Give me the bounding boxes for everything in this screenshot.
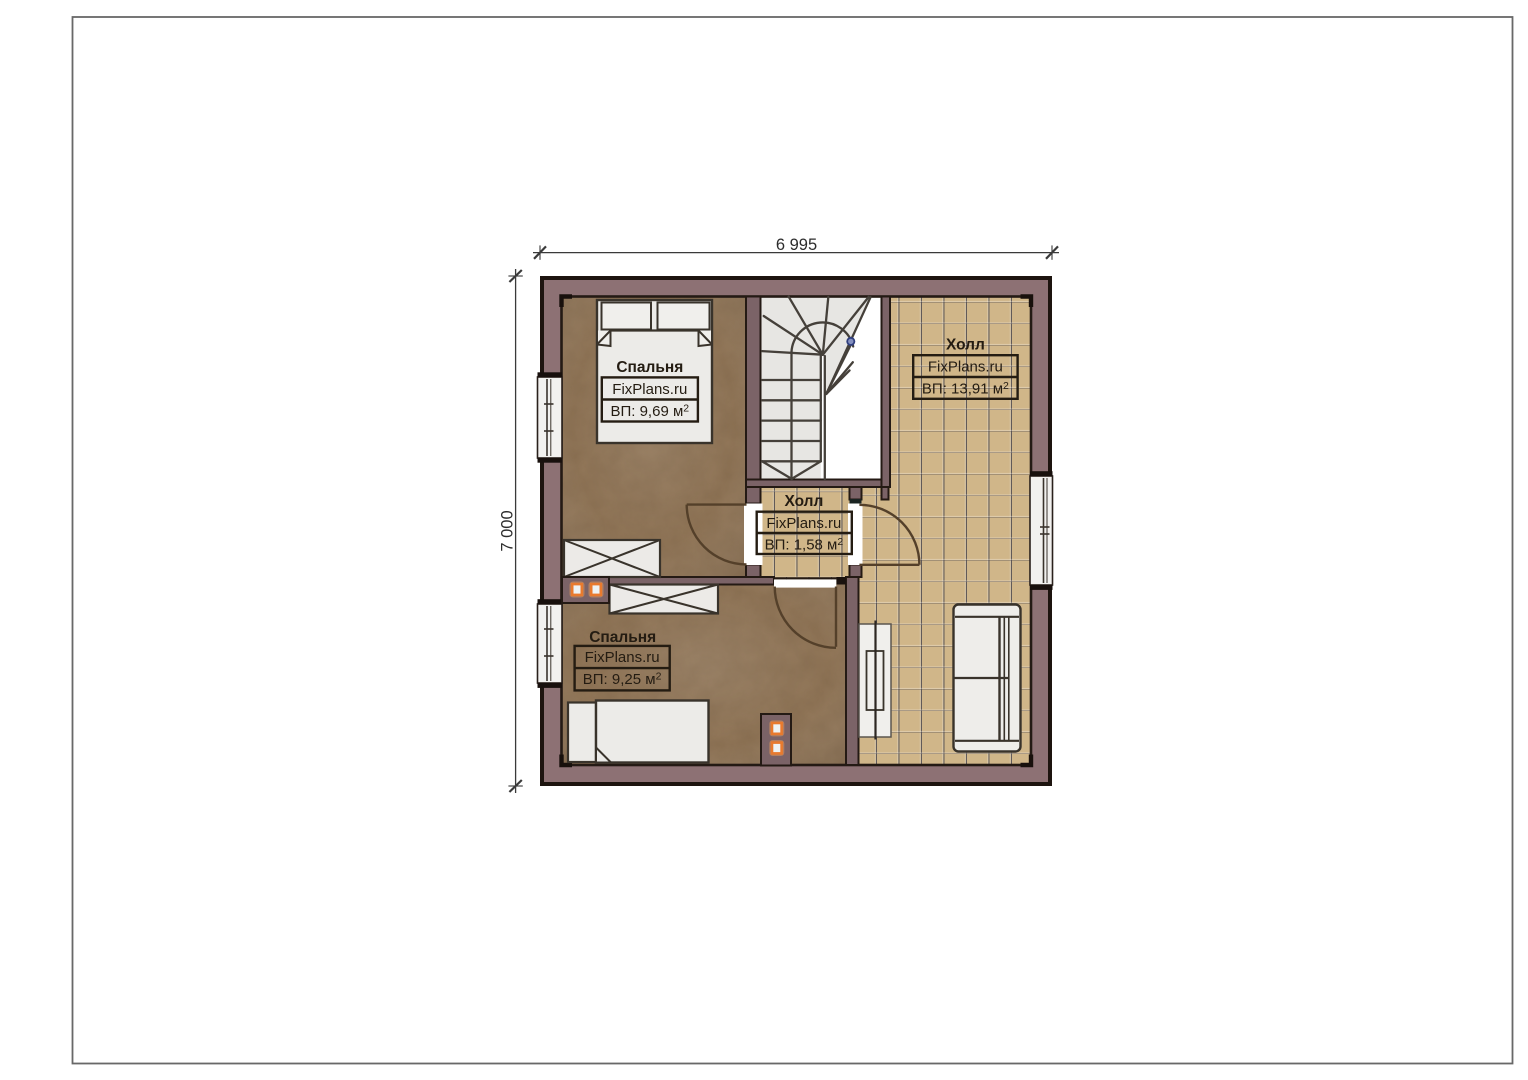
svg-text:FixPlans.ru: FixPlans.ru — [766, 515, 841, 532]
svg-text:ВП: 1,58 м2: ВП: 1,58 м2 — [765, 536, 844, 554]
svg-text:ВП: 9,69 м2: ВП: 9,69 м2 — [610, 402, 689, 420]
svg-text:FixPlans.ru: FixPlans.ru — [612, 381, 687, 398]
svg-text:Холл: Холл — [784, 493, 823, 510]
svg-text:FixPlans.ru: FixPlans.ru — [928, 358, 1003, 375]
svg-text:FixPlans.ru: FixPlans.ru — [585, 649, 660, 666]
svg-text:Спальня: Спальня — [616, 359, 683, 376]
svg-text:Спальня: Спальня — [589, 629, 656, 646]
svg-text:7 000: 7 000 — [499, 510, 517, 551]
svg-text:Холл: Холл — [946, 337, 985, 354]
svg-text:ВП: 13,91 м2: ВП: 13,91 м2 — [922, 380, 1009, 398]
svg-text:ВП: 9,25 м2: ВП: 9,25 м2 — [583, 671, 662, 689]
svg-text:6 995: 6 995 — [776, 236, 817, 254]
